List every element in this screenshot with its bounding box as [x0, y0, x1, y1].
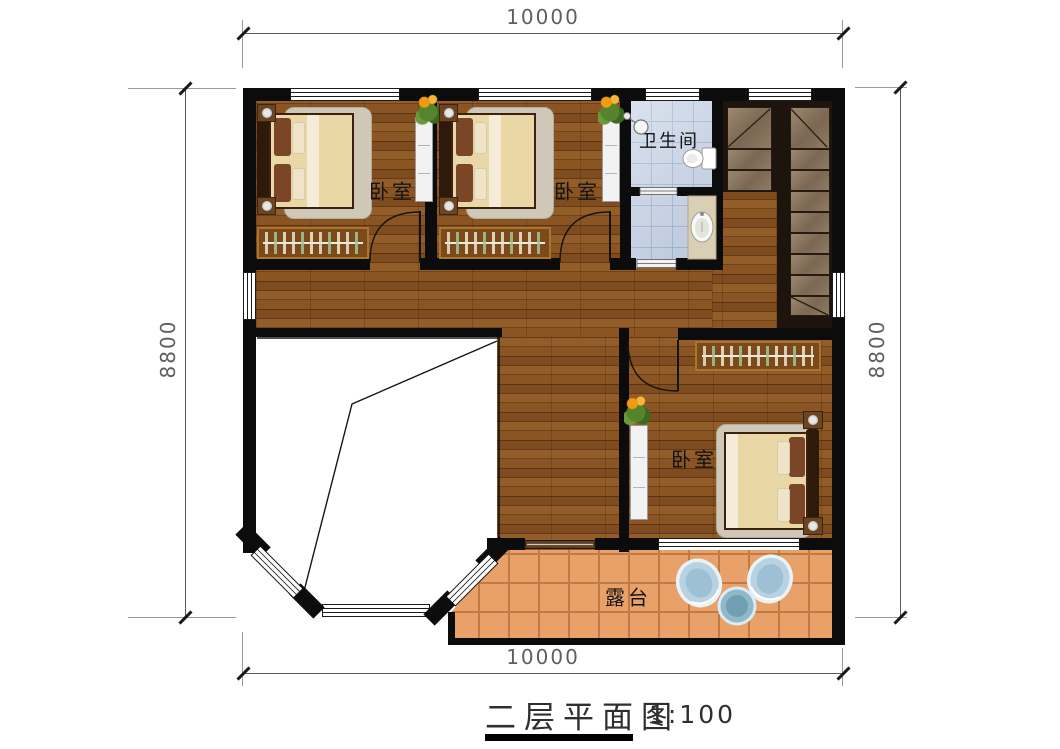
pillow-icon [777, 441, 790, 475]
bed-sheet [489, 115, 501, 207]
left-dimension-label: 8800 [156, 284, 180, 414]
extension-line [842, 20, 843, 68]
bay-window [251, 546, 303, 598]
bed-sheet [726, 434, 738, 528]
wall [243, 88, 256, 553]
wall [832, 88, 845, 645]
window [645, 88, 700, 101]
wall [619, 328, 629, 552]
stair-tread [790, 170, 830, 191]
wall [610, 258, 636, 270]
terrace-parapet [448, 638, 845, 645]
void-area [257, 338, 499, 552]
wall [256, 328, 502, 337]
wall [487, 538, 525, 550]
bedroom-right-label: 卧室 [671, 444, 717, 473]
pillow-icon [456, 118, 473, 156]
wall [595, 538, 658, 550]
pillow-icon [456, 164, 473, 202]
extension-line [842, 648, 843, 686]
stair-landing-floor [722, 192, 777, 330]
stair-landing-floor [712, 268, 722, 330]
stair-tread [790, 275, 830, 296]
window [243, 272, 256, 320]
window [658, 538, 800, 550]
pillow-icon [292, 168, 305, 200]
wardrobe-icon [695, 341, 821, 371]
stair-tread [790, 296, 830, 316]
bed-sheet [307, 115, 319, 207]
stair-tread [727, 107, 772, 149]
top-dimension-label: 10000 [443, 5, 643, 29]
right-dimension-line [900, 87, 901, 617]
floor-plan: 10000 10000 8800 8800 [0, 0, 1060, 749]
pillow-icon [474, 122, 487, 154]
plant-icon [624, 394, 650, 426]
pillow-icon [292, 122, 305, 154]
nightstand-icon [803, 517, 823, 535]
stair-tread [727, 149, 772, 170]
wall [676, 258, 723, 270]
drawing-scale: 1:100 [649, 700, 736, 729]
void-diagonal-line [303, 341, 497, 595]
wall [420, 258, 560, 270]
wardrobe-icon [257, 227, 369, 259]
wall [620, 187, 640, 196]
stair-tread [790, 149, 830, 170]
wall [243, 258, 370, 270]
nightstand-icon [257, 104, 276, 122]
stair-tread [790, 212, 830, 233]
bay-corner-post [289, 583, 324, 618]
wall [620, 101, 631, 268]
pillow-icon [789, 437, 805, 477]
bay-window [322, 604, 430, 617]
cabinet-icon [630, 425, 648, 520]
nightstand-icon [439, 197, 458, 215]
extension-line [242, 20, 243, 68]
bedroom-top-left-label: 卧室 [369, 176, 415, 205]
nightstand-icon [439, 104, 458, 122]
nightstand-icon [803, 411, 823, 429]
wall [800, 538, 845, 550]
stair-tread [727, 170, 772, 191]
bedroom-top-middle-label: 卧室 [554, 176, 600, 205]
extension-line [242, 632, 243, 686]
dresser-icon [602, 117, 620, 202]
top-dimension-line [243, 33, 843, 34]
plant-icon [598, 92, 624, 126]
pillow-icon [274, 118, 291, 156]
wardrobe-icon [439, 227, 551, 259]
window [832, 272, 845, 318]
terrace-label: 露台 [605, 582, 651, 611]
stair-tread [790, 254, 830, 275]
stair-tread [790, 191, 830, 212]
stair-tread [790, 233, 830, 254]
dresser-icon [415, 117, 433, 202]
window [748, 88, 812, 101]
pillow-icon [474, 168, 487, 200]
pillow-icon [777, 488, 790, 522]
right-dimension-label: 8800 [865, 284, 889, 414]
bathroom-label: 卫生间 [639, 127, 699, 153]
window [478, 88, 592, 101]
pillow-icon [274, 164, 291, 202]
wall [712, 101, 723, 268]
bottom-dimension-label: 10000 [443, 645, 643, 669]
wall [678, 328, 845, 340]
left-dimension-line [185, 88, 186, 617]
nightstand-icon [257, 197, 276, 215]
window [290, 88, 400, 101]
title-underline [485, 734, 633, 741]
wall [677, 187, 723, 196]
terrace-parapet [448, 612, 455, 645]
bottom-dimension-line [243, 673, 843, 674]
stair-tread [790, 107, 830, 149]
